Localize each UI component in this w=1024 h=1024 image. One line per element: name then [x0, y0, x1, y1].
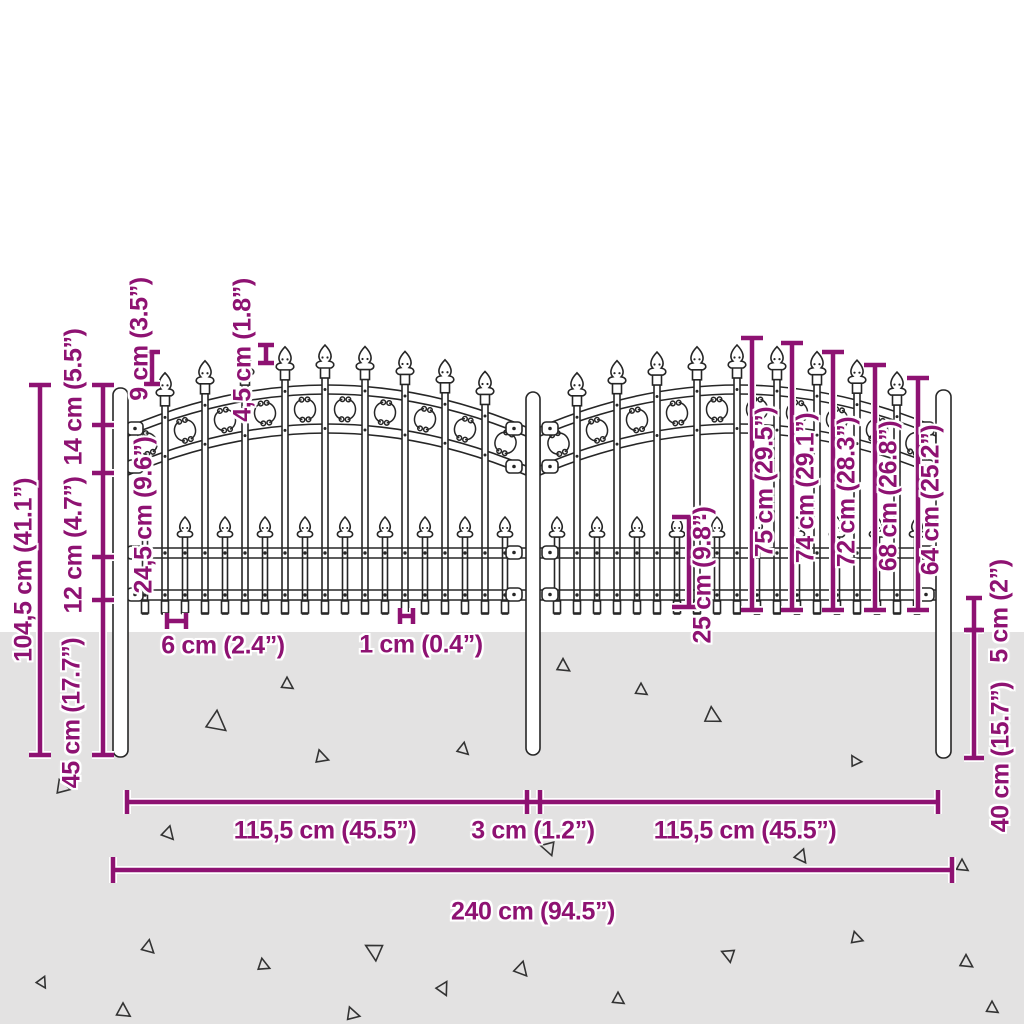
dim-label-short-picket: 25 cm (9.8”): [689, 507, 718, 644]
dim-label-picket-72: 72 cm (28.3”): [833, 417, 862, 567]
dim-label-spike-height: 9 cm (3.5”): [126, 277, 155, 400]
dim-label-picket-68: 68 cm (26.8”): [875, 421, 904, 571]
dim-label-panel-width-left: 115,5 cm (45.5”): [234, 817, 417, 846]
dim-label-embed-left: 45 cm (17.7”): [58, 638, 87, 788]
dim-label-total-height: 104,5 cm (41.1”): [10, 478, 39, 662]
dim-label-panel-width-right: 115,5 cm (45.5”): [654, 817, 837, 846]
dim-label-embed-right: 40 cm (15.7”): [987, 682, 1016, 832]
dim-label-post-gap: 3 cm (1.2”): [471, 817, 594, 846]
dim-label-total-width: 240 cm (94.5”): [451, 898, 615, 927]
dim-label-tip-step: 4,5 cm (1.8”): [229, 278, 258, 421]
dim-label-picket-gap: 6 cm (2.4”): [161, 632, 284, 661]
dim-label-rail-spacing: 12 cm (4.7”): [60, 477, 89, 614]
dim-label-ground-clearance: 5 cm (2”): [986, 559, 1015, 662]
dim-label-picket-64: 64 cm (25.2”): [917, 425, 946, 575]
dim-label-picket-width: 1 cm (0.4”): [359, 631, 482, 660]
dim-label-mid-section: 24,5 cm (9.6”): [130, 437, 159, 594]
dim-label-picket-75: 75 cm (29.5”): [751, 407, 780, 557]
fence-dimension-diagram: 104,5 cm (41.1”) 45 cm (17.7”) 12 cm (4.…: [0, 0, 1024, 1024]
dim-label-picket-74: 74 cm (29.1”): [792, 413, 821, 563]
dim-label-top-offset: 14 cm (5.5”): [60, 329, 89, 466]
